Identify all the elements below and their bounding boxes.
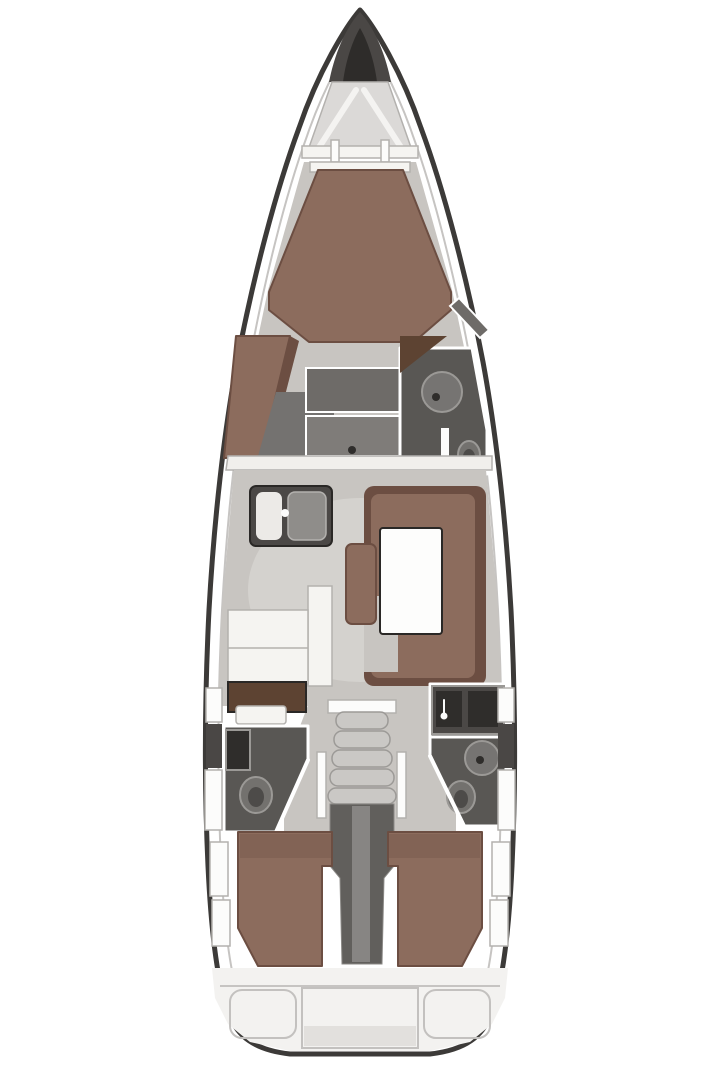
port-head-sink bbox=[226, 730, 250, 770]
main-bulkhead bbox=[226, 456, 492, 470]
windlass-post-right bbox=[381, 140, 389, 162]
galley-stove bbox=[236, 706, 286, 724]
companionway-step-4 bbox=[330, 769, 394, 786]
companionway-rail-left bbox=[317, 752, 326, 818]
companionway-frame bbox=[328, 700, 396, 713]
companionway-step-5 bbox=[328, 788, 396, 804]
starboard-side-window-1 bbox=[492, 842, 510, 896]
starboard-faucet bbox=[441, 713, 448, 720]
salon-table bbox=[380, 528, 442, 634]
salon-settee-group bbox=[346, 486, 486, 686]
starboard-locker-3 bbox=[498, 770, 515, 830]
galley-sink-basin bbox=[256, 492, 282, 540]
port-side-window-1 bbox=[210, 842, 228, 896]
companionway-step-3 bbox=[332, 750, 392, 767]
companionway-step-2 bbox=[334, 731, 390, 748]
companionway-step-1 bbox=[336, 712, 388, 729]
forward-shower-seat bbox=[422, 372, 462, 412]
yacht-floorplan-page bbox=[0, 0, 720, 1080]
starboard-aft-blanket bbox=[388, 834, 480, 858]
starboard-locker-2 bbox=[498, 724, 514, 768]
port-locker-3 bbox=[205, 770, 222, 830]
port-toilet-bowl bbox=[248, 787, 264, 807]
stern-recess-shade bbox=[304, 1026, 416, 1046]
salon-chair bbox=[346, 544, 376, 624]
starboard-vanity-panel-right bbox=[468, 691, 498, 727]
dresser-handle bbox=[348, 446, 356, 454]
galley-cabinet bbox=[308, 586, 332, 686]
port-aft-blanket bbox=[240, 834, 332, 858]
galley-faucet bbox=[281, 509, 289, 517]
windlass-post-left bbox=[331, 140, 339, 162]
starboard-side-window-2 bbox=[490, 900, 508, 946]
starboard-locker-1 bbox=[498, 688, 514, 722]
port-locker-1 bbox=[206, 688, 222, 722]
yacht-floorplan bbox=[0, 0, 720, 1080]
dresser-upper bbox=[306, 368, 400, 412]
windlass-bar bbox=[302, 146, 418, 158]
galley-counter bbox=[228, 610, 308, 684]
stern-section bbox=[212, 968, 508, 1051]
galley-drainboard bbox=[288, 492, 326, 540]
forward-shower-drain bbox=[432, 393, 440, 401]
port-locker-2 bbox=[206, 724, 222, 768]
companionway-rail-right bbox=[397, 752, 406, 818]
engine-compartment-stripe bbox=[352, 806, 370, 962]
starboard-vanity-panel-left bbox=[436, 691, 462, 727]
starboard-shower-drain bbox=[476, 756, 484, 764]
port-side-window-2 bbox=[212, 900, 230, 946]
